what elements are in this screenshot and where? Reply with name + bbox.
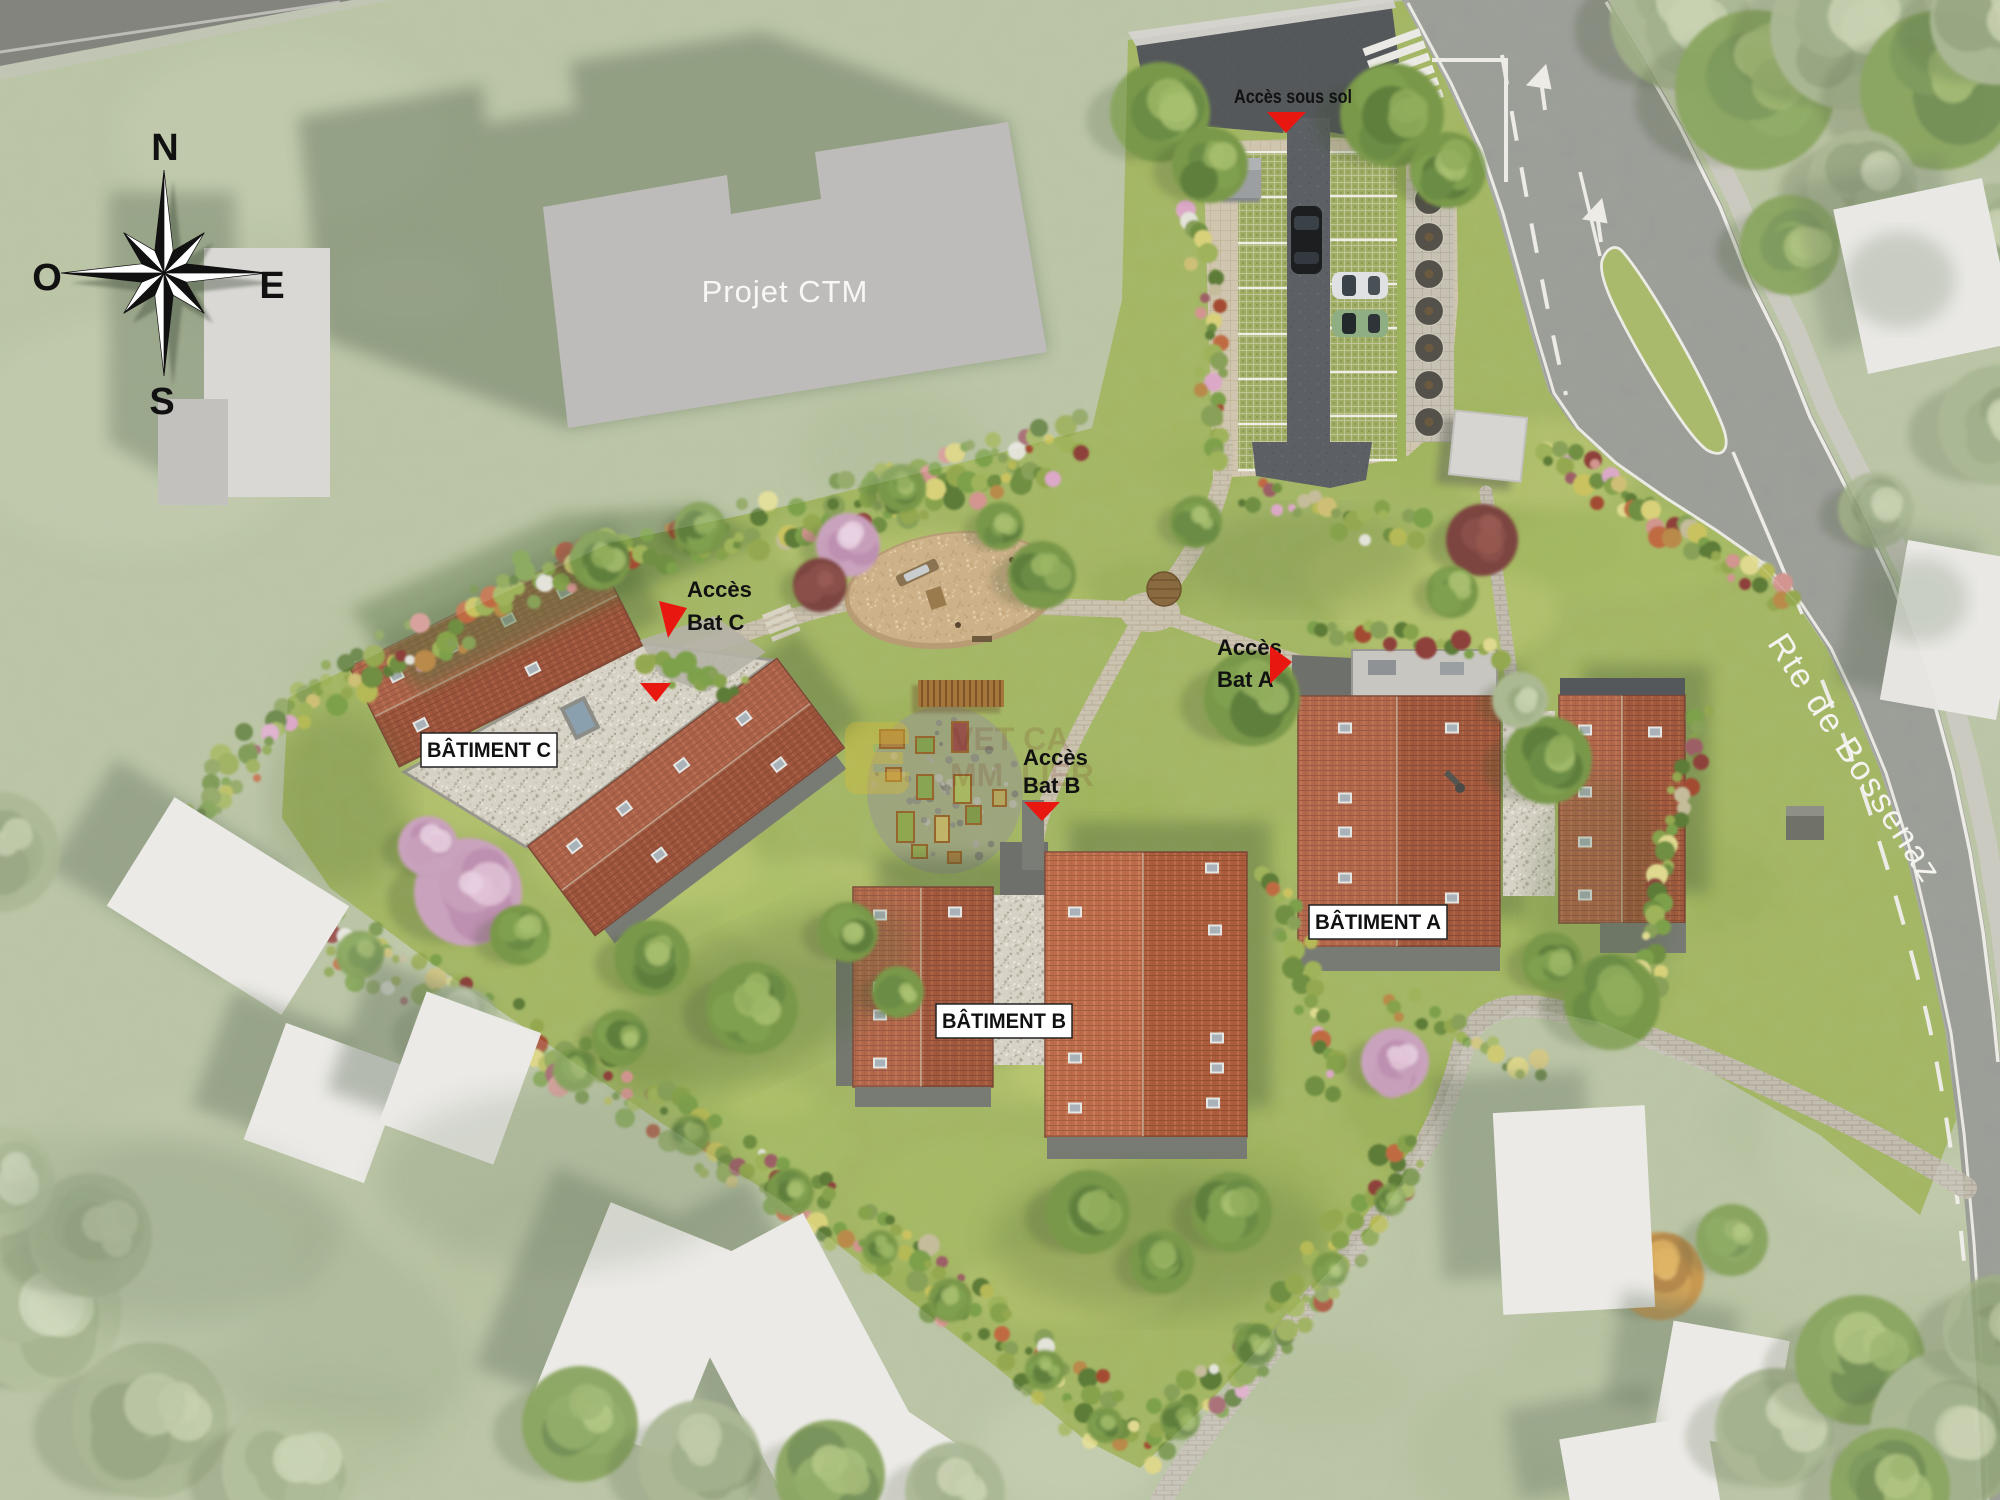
- svg-text:E: E: [259, 265, 284, 307]
- svg-text:N: N: [151, 127, 178, 169]
- svg-text:O: O: [32, 257, 62, 299]
- svg-text:Accès: Accès: [687, 577, 752, 602]
- svg-text:Bat A: Bat A: [1217, 667, 1274, 692]
- svg-text:S: S: [149, 381, 174, 423]
- svg-text:Bat C: Bat C: [687, 610, 745, 635]
- svg-text:BÂTIMENT B: BÂTIMENT B: [942, 1009, 1066, 1033]
- svg-text:Accès sous sol: Accès sous sol: [1234, 87, 1352, 108]
- svg-text:Bat B: Bat B: [1023, 773, 1080, 798]
- svg-text:Accès: Accès: [1023, 745, 1088, 770]
- svg-text:BÂTIMENT A: BÂTIMENT A: [1315, 910, 1441, 934]
- svg-text:BÂTIMENT C: BÂTIMENT C: [427, 738, 551, 762]
